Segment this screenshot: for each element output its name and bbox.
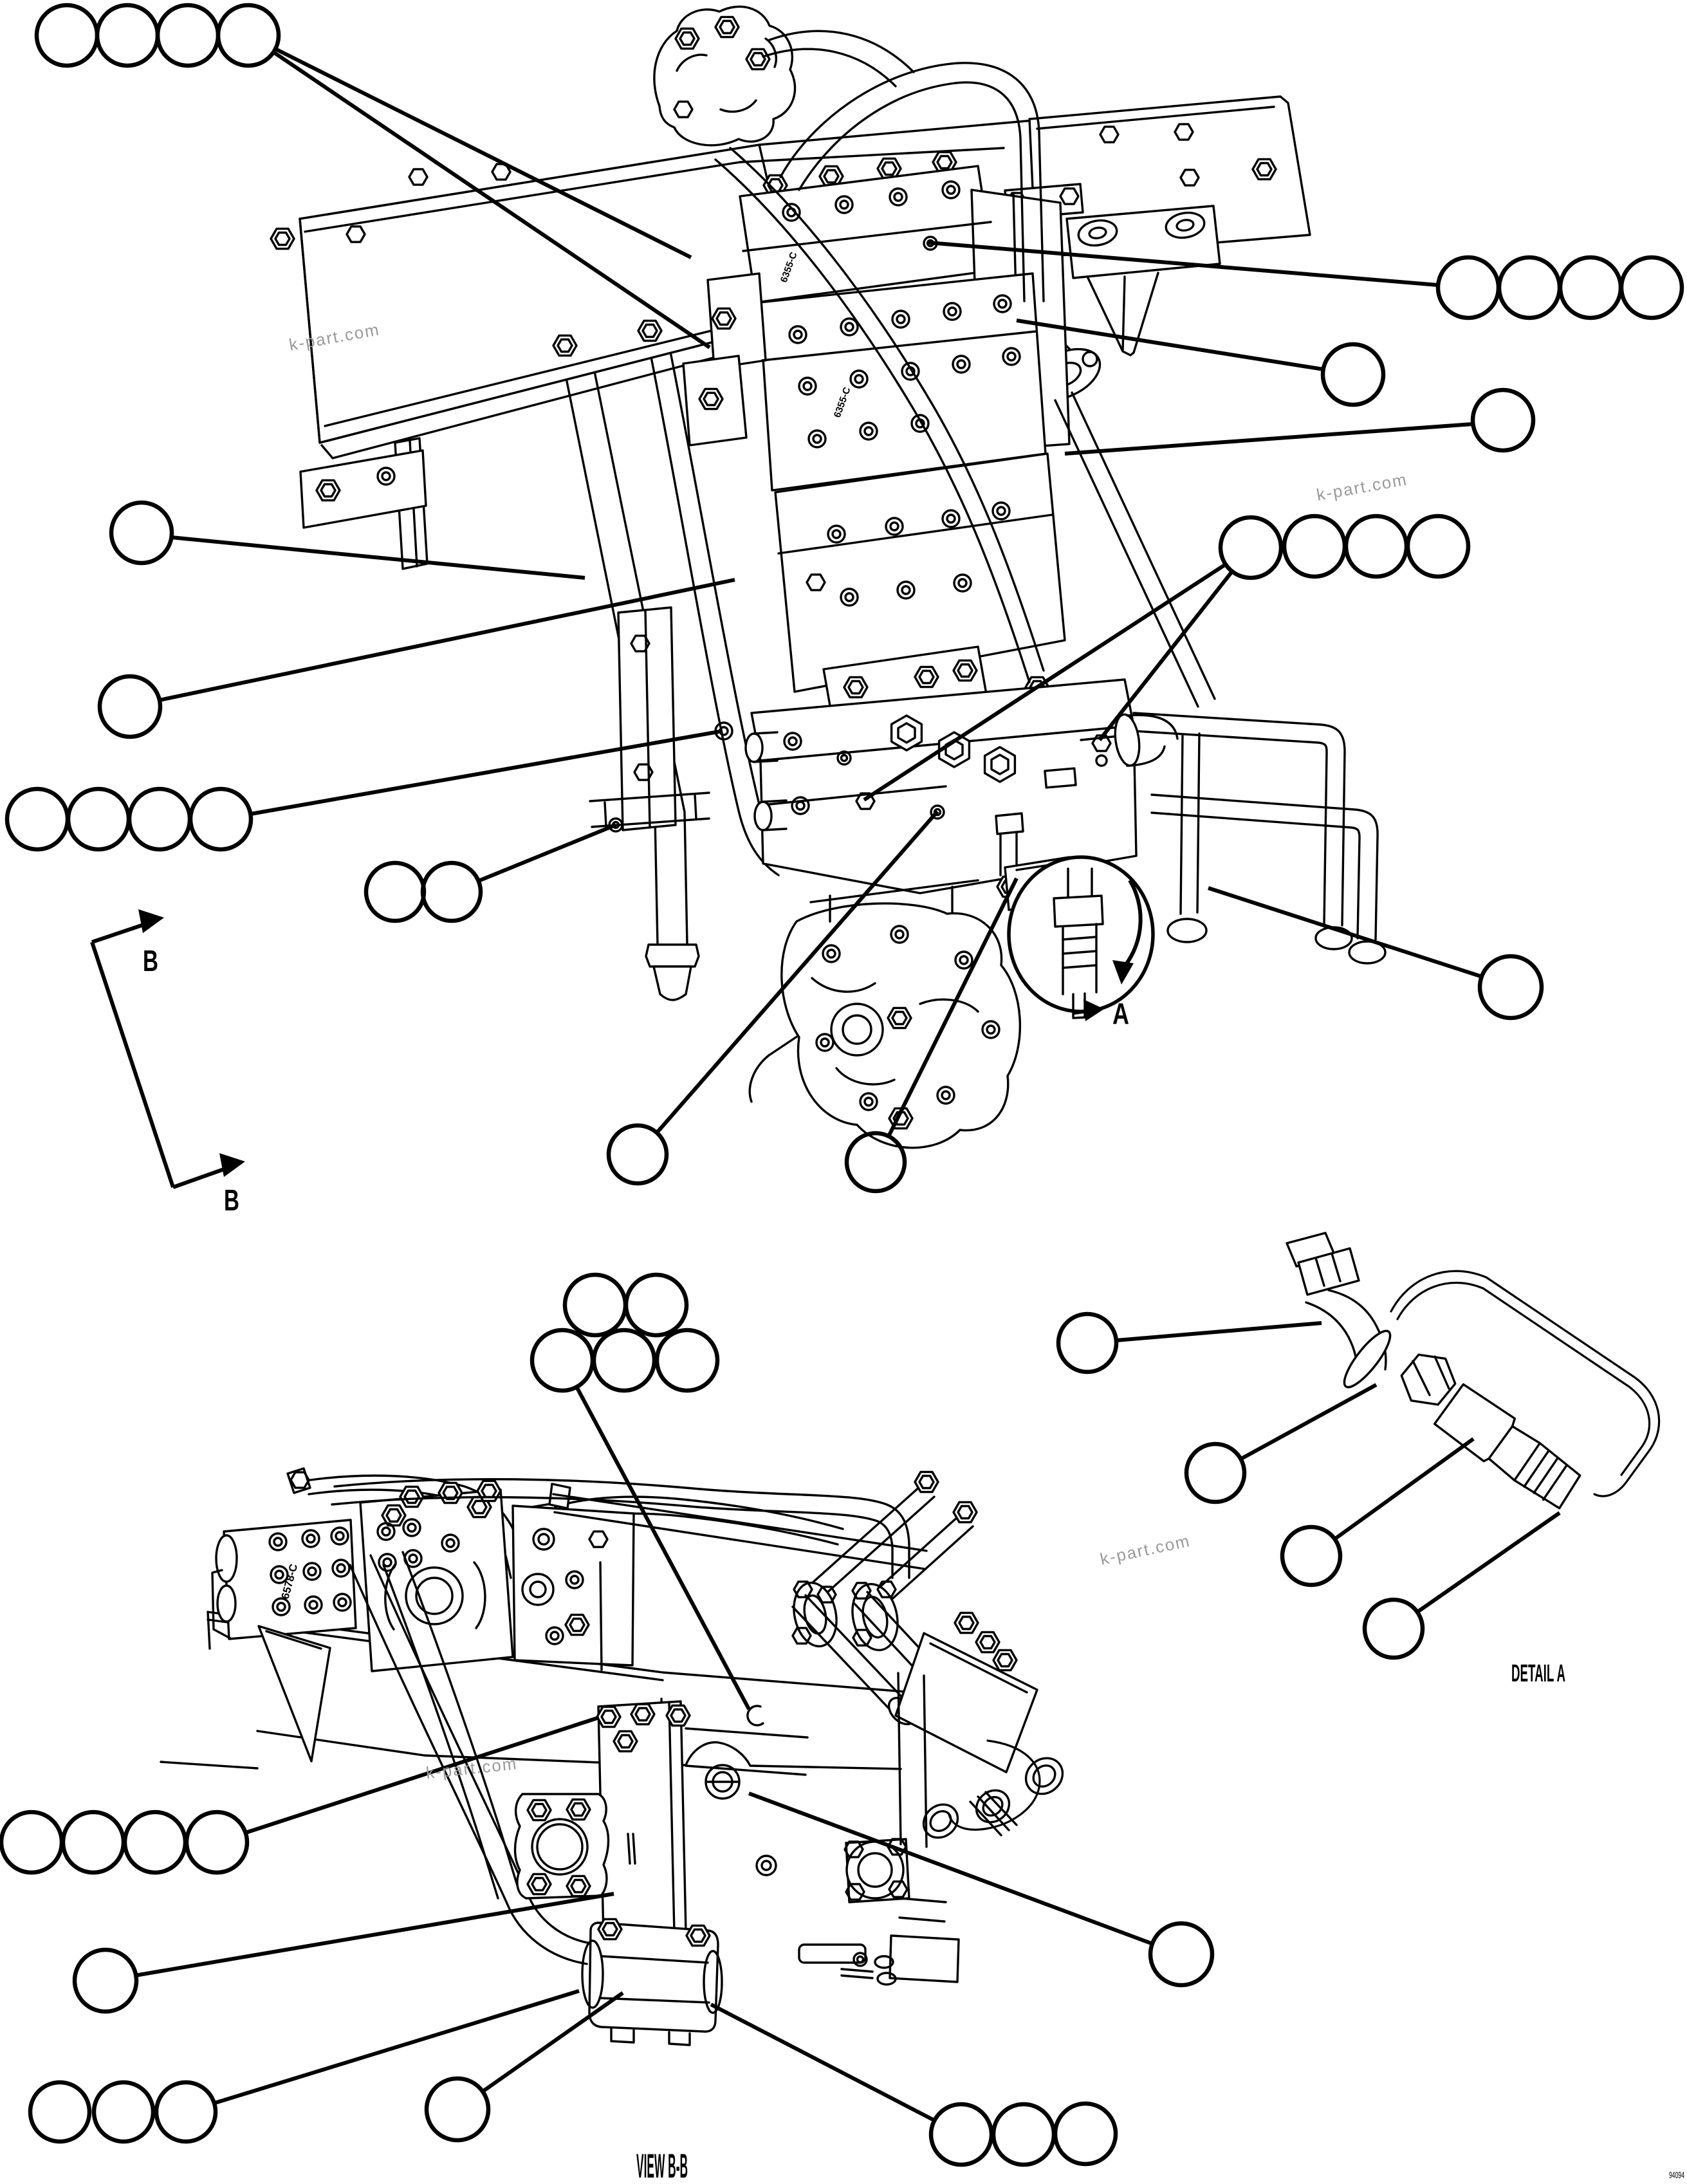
svg-text:DETAIL A: DETAIL A (1511, 1660, 1565, 1687)
svg-text:VIEW B-B: VIEW B-B (636, 2147, 688, 2184)
svg-text:A: A (1112, 997, 1129, 1030)
svg-text:94094: 94094 (1669, 2170, 1684, 2181)
svg-text:B: B (143, 944, 158, 977)
svg-text:B: B (224, 1183, 239, 1217)
